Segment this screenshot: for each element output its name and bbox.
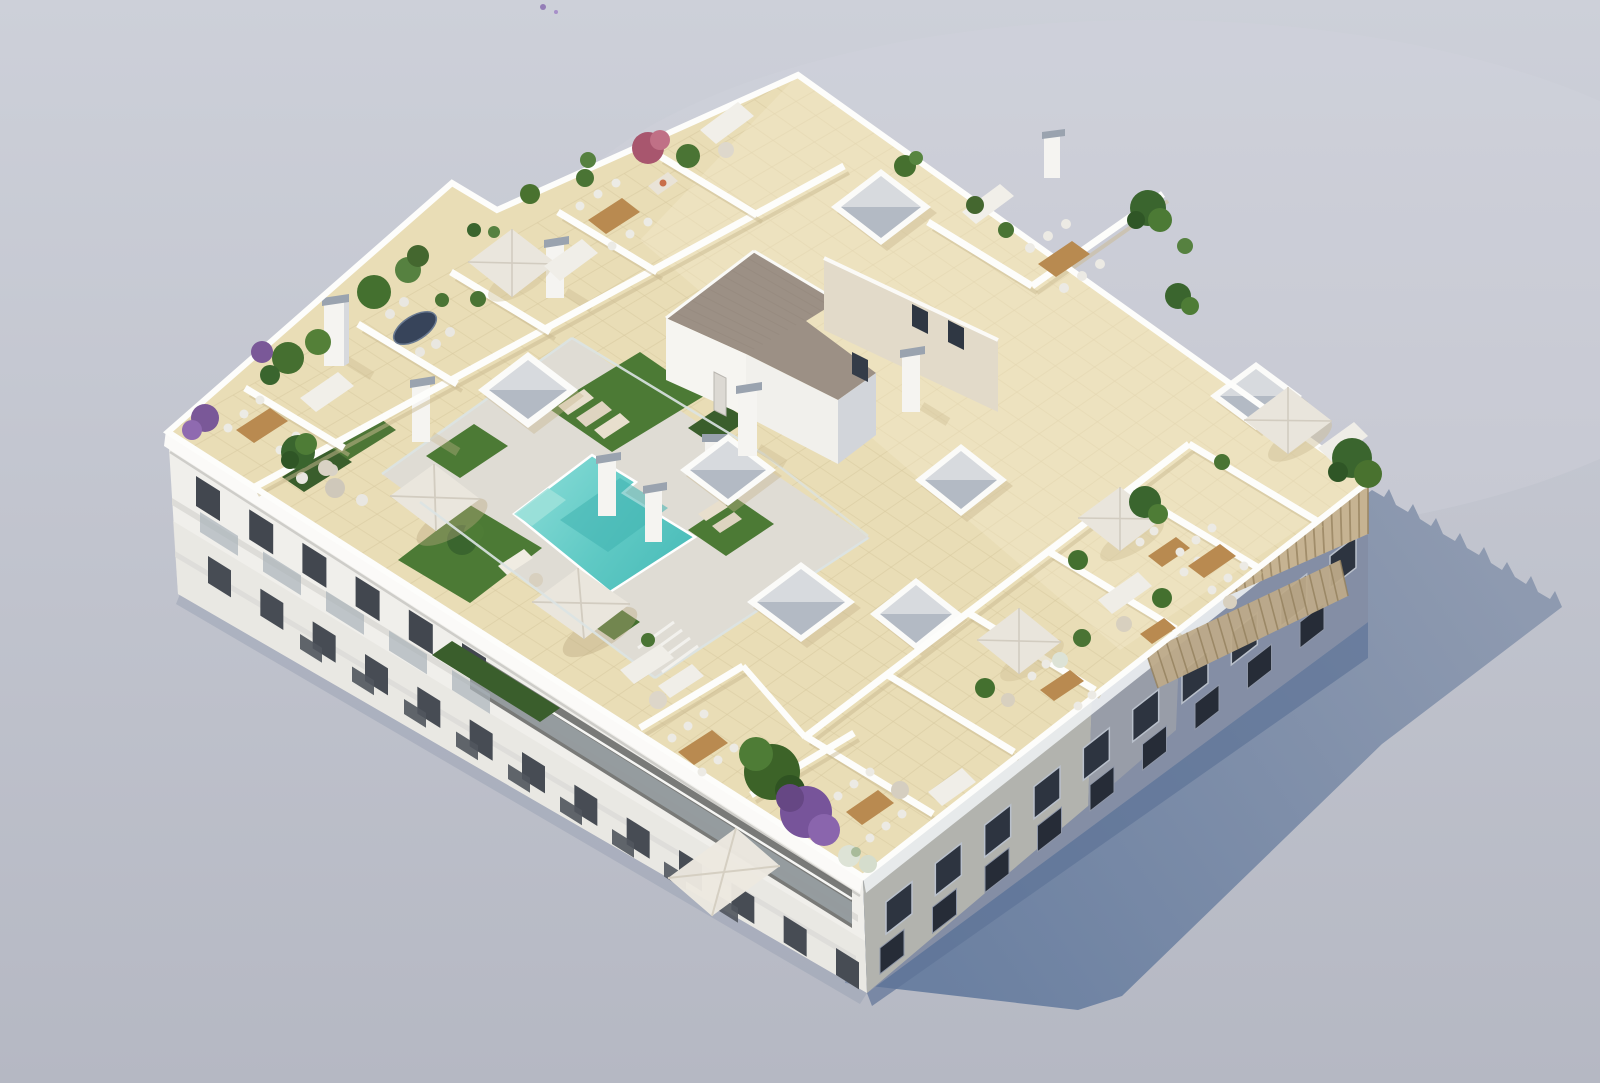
terrace-5-chair-3 xyxy=(612,179,621,188)
tb2-chair-6 xyxy=(898,810,907,819)
ts4-chair-6 xyxy=(1240,562,1249,571)
tb2-purple-bush-2 xyxy=(808,814,840,846)
terrace-5-cushion xyxy=(660,180,667,187)
terrace-4-pot-1 xyxy=(470,291,486,307)
tb1-chair-5 xyxy=(714,756,723,765)
ts2-pouf xyxy=(1001,693,1015,707)
tb2-bush-green-dot xyxy=(851,847,861,857)
ts2-chair-1 xyxy=(1028,672,1037,681)
render-stage: Aerial 3D render of a white apartment bu… xyxy=(0,0,1600,1083)
terrace-w-purple-bush-2 xyxy=(182,420,202,440)
terrace-w-chair-1 xyxy=(224,424,233,433)
ne-chair-4 xyxy=(1059,283,1069,293)
se-louver-slats-1-line xyxy=(1350,494,1351,542)
chimney-1 xyxy=(324,298,344,366)
terrace-5-chair-6 xyxy=(644,218,653,227)
tb1-pouf xyxy=(649,691,667,709)
terrace-5-pot xyxy=(576,169,594,187)
tb1-chair-3 xyxy=(700,710,709,719)
terrace-2-purple xyxy=(251,341,273,363)
terrace-5-chair-2 xyxy=(594,190,603,199)
chimney-6 xyxy=(738,386,757,456)
terrace-3-tree-1 xyxy=(357,275,391,309)
tb2-chair-4 xyxy=(866,834,875,843)
e2-chair-2 xyxy=(1150,527,1159,536)
tb1-chair-1 xyxy=(668,734,677,743)
tb1-pot xyxy=(641,633,655,647)
ts2-plant xyxy=(975,678,995,698)
chimney-8 xyxy=(1044,132,1060,178)
terrace-w-palm-2 xyxy=(295,433,317,455)
e2-plant xyxy=(1068,550,1088,570)
ne-pot-1 xyxy=(998,222,1014,238)
artifact-speck-1 xyxy=(540,4,546,10)
ne-chair-3 xyxy=(1061,219,1071,229)
ts2-chair-3 xyxy=(1074,702,1083,711)
terrace-3-chair-2 xyxy=(399,297,409,307)
ne-palm-2 xyxy=(1148,208,1172,232)
terrace-6-green-bush xyxy=(676,144,700,168)
tb2-chair-2 xyxy=(850,780,859,789)
terrace-3-chair-5 xyxy=(415,347,425,357)
tb1-chair-2 xyxy=(684,722,693,731)
ts2-chair-4 xyxy=(1088,691,1097,700)
tb1-tree-2 xyxy=(739,737,773,771)
aerial-building-render xyxy=(0,0,1600,1083)
tb2-chair-1 xyxy=(834,792,843,801)
walkway-chair-2 xyxy=(356,494,368,506)
tb2-purple-bush-3 xyxy=(776,784,804,812)
chimney-7 xyxy=(902,350,920,412)
terrace-w-palm-3 xyxy=(281,451,299,469)
terrace-2-tree-2 xyxy=(305,329,331,355)
e1-pot xyxy=(1214,454,1230,470)
e2-palm-2 xyxy=(1148,504,1168,524)
ts3-bush xyxy=(1052,652,1068,668)
ts3-pouf xyxy=(1116,616,1132,632)
terrace-6-pouf xyxy=(718,142,734,158)
chimney-1-side xyxy=(344,295,349,366)
e2-chair-1 xyxy=(1136,538,1145,547)
ne-parapet-plant-3 xyxy=(966,196,984,214)
terrace-5-chair-4 xyxy=(608,242,617,251)
parapet-plant-2 xyxy=(520,184,540,204)
terrace-5-chair-5 xyxy=(626,230,635,239)
ts4-chair-1 xyxy=(1176,548,1185,557)
walkway-pouf xyxy=(325,478,345,498)
tb2-white-bush-2 xyxy=(859,855,877,873)
ts4-chair-2 xyxy=(1192,536,1201,545)
ts4-pouf xyxy=(1223,595,1237,609)
parapet-plant-3 xyxy=(580,152,596,168)
tb2-chair-3 xyxy=(866,768,875,777)
ne-chair-2 xyxy=(1043,231,1053,241)
ne-chair-5 xyxy=(1077,271,1087,281)
ne-deck-palm-2 xyxy=(1181,297,1199,315)
e1-corner-palm-3 xyxy=(1328,462,1348,482)
core-door xyxy=(714,372,726,416)
e2-chair-3 xyxy=(1180,568,1189,577)
terrace-2-tree-3 xyxy=(260,365,280,385)
parapet-plant-4 xyxy=(467,223,481,237)
tb2-pouf xyxy=(891,781,909,799)
terrace-6-pink-bush-2 xyxy=(650,130,670,150)
terrace-4-pot-2 xyxy=(488,226,500,238)
terrace-3-chair-3 xyxy=(431,339,441,349)
tb2-chair-5 xyxy=(882,822,891,831)
ne-chair-1 xyxy=(1025,243,1035,253)
ts4-chair-4 xyxy=(1208,586,1217,595)
terrace-3-chair-4 xyxy=(445,327,455,337)
terrace-3-pot xyxy=(435,293,449,307)
ts3-plant xyxy=(1073,629,1091,647)
chimney-4 xyxy=(598,456,616,516)
tb1-chair-4 xyxy=(698,768,707,777)
terrace-w-pouf xyxy=(318,460,334,476)
ts4-plant xyxy=(1152,588,1172,608)
artifact-speck-2 xyxy=(554,10,558,14)
parapet-plant-1 xyxy=(407,245,429,267)
ne-pot-2 xyxy=(1177,238,1193,254)
terrace-3-chair-1 xyxy=(385,309,395,319)
terrace-5-chair-1 xyxy=(576,202,585,211)
ts4-chair-5 xyxy=(1224,574,1233,583)
ne-chair-6 xyxy=(1095,259,1105,269)
ts4-chair-3 xyxy=(1208,524,1217,533)
tb1-chair-6 xyxy=(730,744,739,753)
terrace-w-chair-5 xyxy=(256,396,265,405)
terrace-w-chair-2 xyxy=(240,410,249,419)
ne-parapet-plant-2 xyxy=(909,151,923,165)
chimney-5 xyxy=(645,486,662,542)
ts2-chair-2 xyxy=(1042,660,1051,669)
e1-corner-palm-2 xyxy=(1354,460,1382,488)
ne-palm-3 xyxy=(1127,211,1145,229)
